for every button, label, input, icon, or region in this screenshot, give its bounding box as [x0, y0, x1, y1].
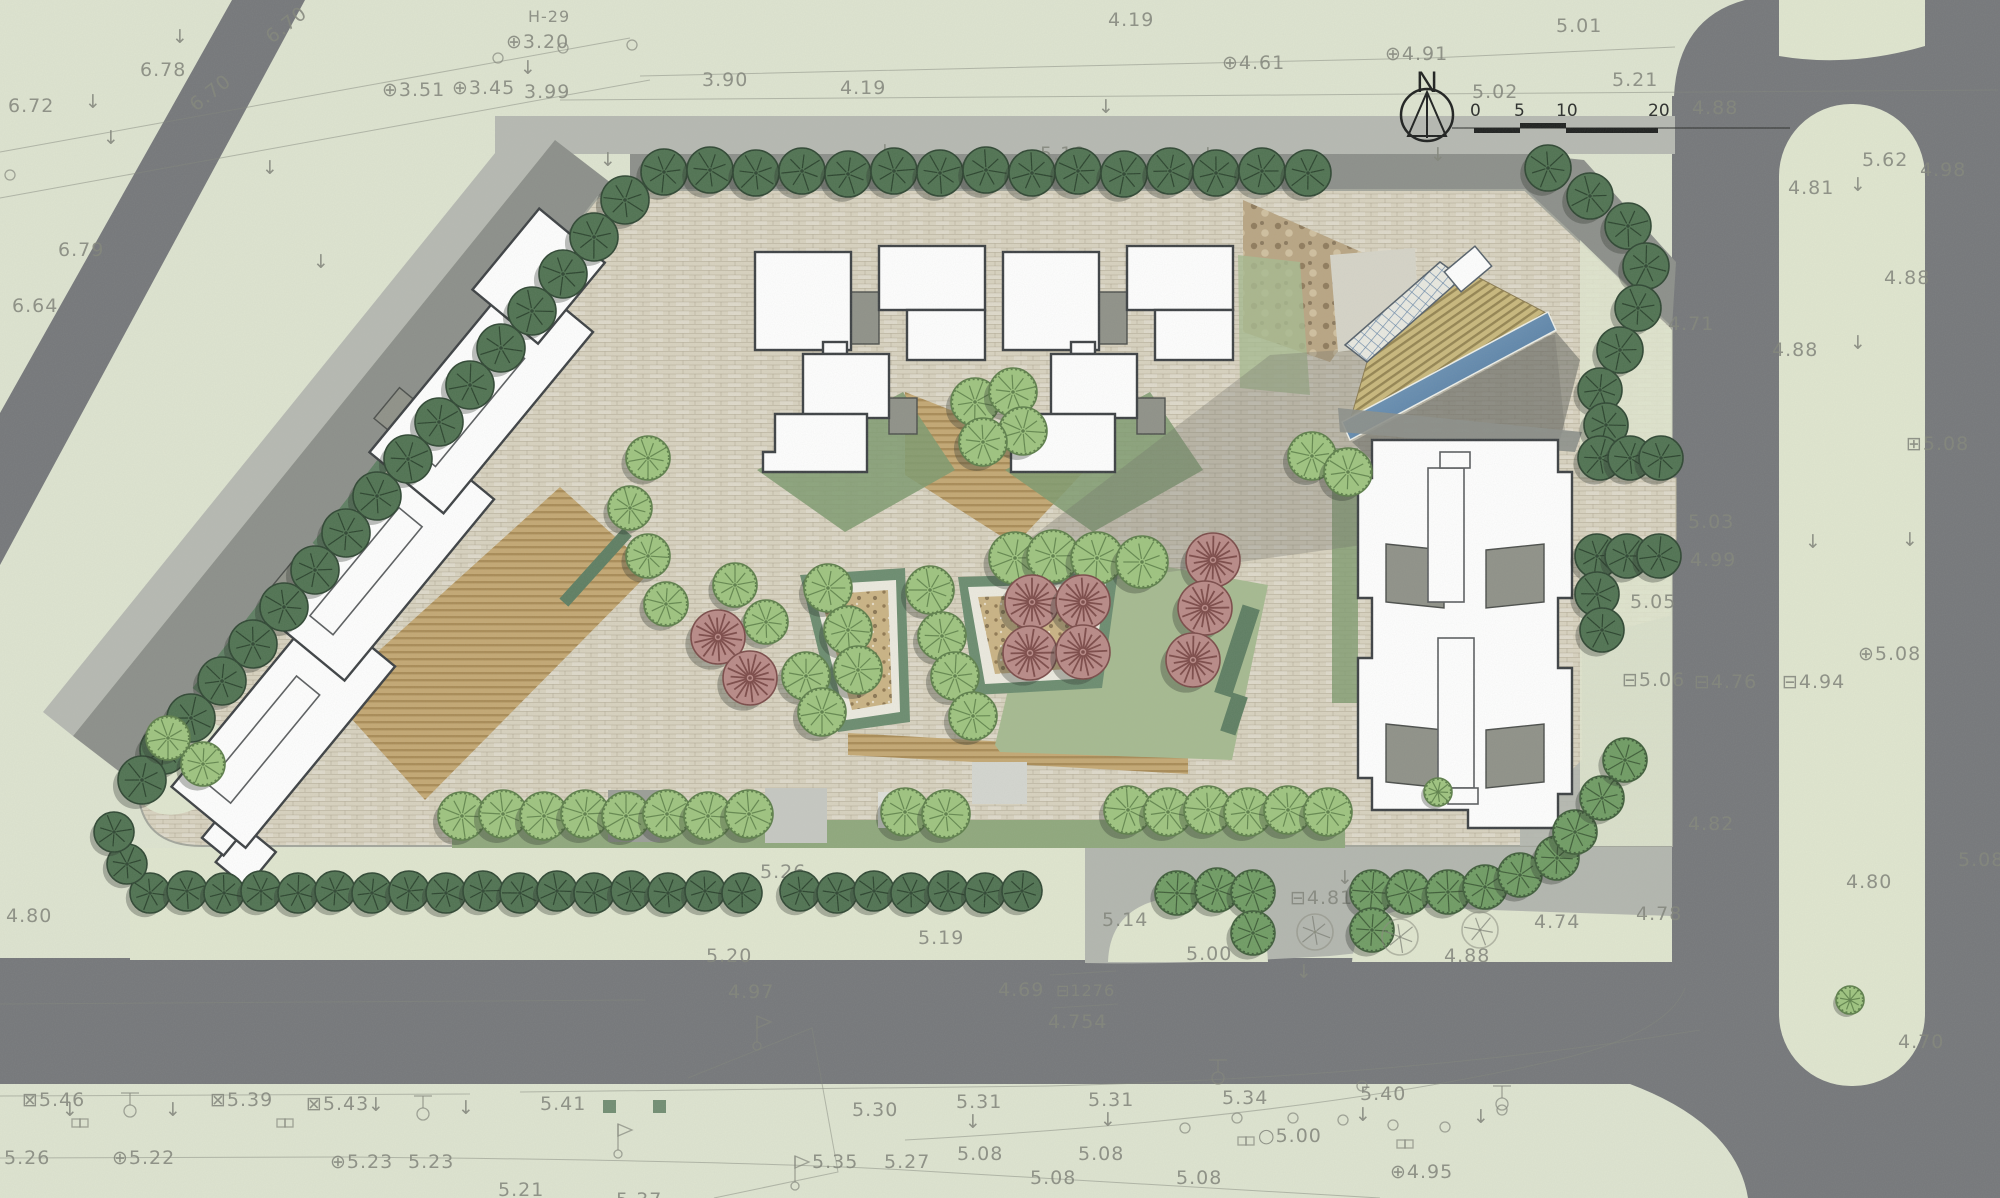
site-plan-page: 6.726.786.706.706.796.64⊕3.51⊕3.20⊕3.453…: [0, 0, 2000, 1198]
site-plan-svg: 6.726.786.706.706.796.64⊕3.51⊕3.20⊕3.453…: [0, 0, 2000, 1198]
paper-grain-overlay: [0, 0, 2000, 1198]
